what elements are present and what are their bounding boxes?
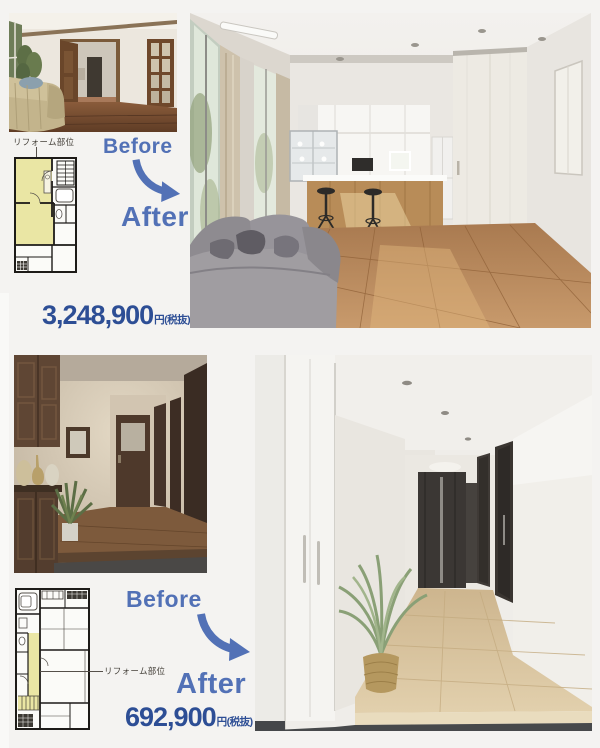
plan-part-label: リフォーム部位 (13, 136, 74, 148)
closet-handle (317, 541, 320, 585)
kitchen-window (390, 152, 410, 170)
price-value: 3,248,900 (42, 302, 153, 329)
before-after-arrow-icon (191, 611, 251, 665)
built-in-appliance (352, 158, 373, 171)
page-edge-strip (0, 293, 9, 748)
end-door (116, 415, 150, 509)
side-door (495, 441, 513, 603)
glazed-door (147, 39, 174, 107)
closet (255, 355, 335, 731)
sofa (190, 214, 341, 328)
step-edge (355, 711, 592, 725)
side-door (477, 453, 490, 587)
upper-cabinet (14, 355, 60, 447)
after-label: After (121, 201, 189, 233)
plan-part-label: リフォーム部位 (104, 665, 165, 677)
countertop (303, 175, 447, 181)
living-before-photo (9, 13, 177, 132)
brochure-page: リフォーム部位 (0, 0, 600, 748)
end-door (418, 472, 466, 588)
price-unit: 円(税抜) (216, 714, 253, 731)
bathtub (19, 593, 37, 610)
before-label: Before (126, 586, 202, 613)
closet-handle (303, 535, 306, 583)
toilet (19, 637, 25, 645)
price: 3,248,900 円(税抜) (42, 302, 190, 329)
sink-unit (67, 591, 87, 599)
bathtub (56, 189, 73, 202)
picture-frame (66, 427, 90, 458)
toilet (56, 210, 62, 219)
glass-cabinet (290, 131, 337, 181)
lower-cabinet (14, 492, 58, 573)
hallway-before-photo (14, 355, 207, 573)
before-label: Before (103, 135, 173, 159)
price-unit: 円(税抜) (153, 312, 190, 329)
living-after-photo (190, 13, 591, 328)
renovated-area-highlight (16, 203, 54, 245)
hallway-door (555, 61, 582, 175)
after-label: After (176, 668, 246, 701)
entry-tile (17, 261, 27, 270)
price: 692,900 円(税抜) (125, 704, 253, 731)
living-floor-plan (14, 157, 77, 273)
entry-tile (18, 714, 33, 727)
plan-leader-line (40, 671, 103, 672)
price-value: 692,900 (125, 704, 216, 731)
ceiling (9, 13, 177, 29)
hallway-after-photo (255, 355, 592, 731)
open-doorway (60, 39, 120, 108)
before-after-arrow-icon (127, 157, 181, 204)
entry-tile (255, 721, 285, 731)
hallway-floor-plan (15, 588, 90, 730)
